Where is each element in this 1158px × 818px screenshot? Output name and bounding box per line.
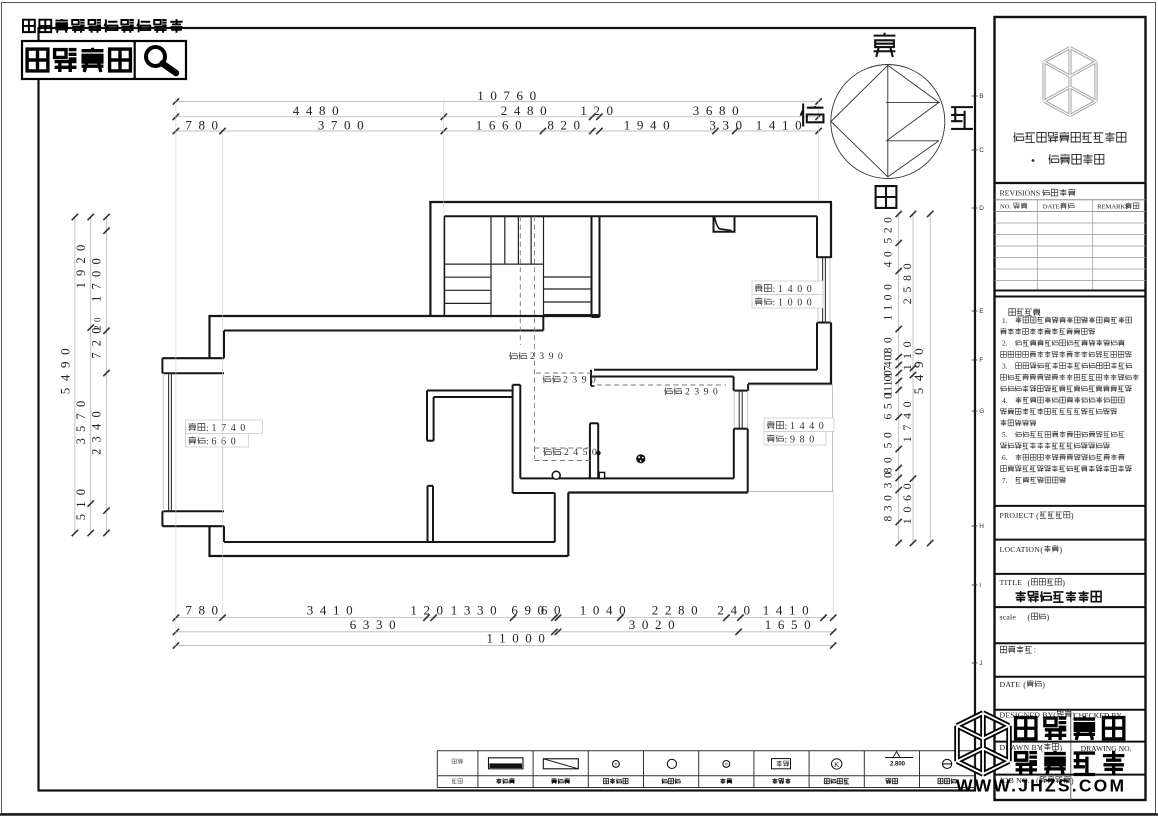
svg-text:(: ( — [1028, 579, 1031, 588]
svg-text:1330: 1330 — [451, 603, 503, 618]
svg-text:2390: 2390 — [530, 351, 567, 362]
svg-text:2.: 2. — [1002, 340, 1008, 348]
svg-text:40: 40 — [883, 247, 895, 268]
svg-text:1.: 1. — [1002, 317, 1008, 325]
svg-text:2480: 2480 — [501, 103, 553, 118]
svg-text:): ) — [1071, 512, 1074, 521]
svg-text:780: 780 — [185, 603, 224, 618]
svg-text:(: ( — [1040, 743, 1043, 752]
svg-text:WWW.JHZS.COM: WWW.JHZS.COM — [956, 776, 1126, 796]
svg-text:1000: 1000 — [778, 298, 816, 309]
svg-text:1660: 1660 — [476, 118, 528, 133]
svg-text:5490: 5490 — [911, 342, 926, 394]
svg-text:3.: 3. — [1002, 363, 1008, 371]
svg-text:2340: 2340 — [90, 405, 104, 455]
svg-text:2.800: 2.800 — [890, 762, 906, 768]
svg-text:720: 720 — [90, 321, 104, 358]
svg-text:NO.: NO. — [1000, 204, 1012, 211]
svg-text:3570: 3570 — [74, 395, 88, 445]
svg-text:60: 60 — [541, 603, 567, 618]
svg-text:3700: 3700 — [318, 118, 370, 133]
svg-text:2390: 2390 — [563, 375, 600, 386]
svg-text:1410: 1410 — [763, 603, 815, 618]
svg-text:scale: scale — [1000, 613, 1017, 622]
svg-text:E: E — [979, 308, 984, 315]
svg-text::: : — [773, 284, 776, 295]
svg-text:4480: 4480 — [293, 103, 345, 118]
svg-text:830: 830 — [883, 490, 895, 521]
svg-text:): ) — [1059, 743, 1062, 752]
svg-text::: : — [785, 435, 788, 446]
svg-text:1060: 1060 — [900, 478, 914, 524]
svg-text:120: 120 — [580, 103, 619, 118]
svg-text:TITLE: TITLE — [1000, 578, 1023, 587]
svg-text:520: 520 — [883, 212, 895, 243]
svg-text:2580: 2580 — [900, 258, 914, 304]
svg-text:3020: 3020 — [629, 617, 681, 632]
svg-text::: : — [1034, 646, 1036, 655]
svg-text:3410: 3410 — [307, 603, 359, 618]
svg-text:): ) — [1047, 613, 1050, 622]
svg-text:780: 780 — [185, 118, 224, 133]
svg-text:PROJECT: PROJECT — [1000, 511, 1034, 520]
svg-text::: : — [785, 421, 788, 432]
svg-text:(: ( — [1036, 512, 1039, 521]
svg-text:2450: 2450 — [564, 447, 601, 458]
svg-text:650: 650 — [883, 388, 895, 419]
svg-text:660: 660 — [212, 437, 241, 448]
svg-text:4.: 4. — [1002, 397, 1008, 405]
svg-text:LOCATION: LOCATION — [1000, 545, 1041, 554]
svg-text:50: 50 — [883, 428, 895, 449]
svg-text:DRAWN BY: DRAWN BY — [1000, 743, 1043, 752]
svg-text:D: D — [979, 205, 984, 212]
svg-text:C: C — [979, 147, 984, 154]
svg-text:1940: 1940 — [624, 118, 676, 133]
svg-text:240: 240 — [717, 603, 756, 618]
svg-text:330: 330 — [709, 118, 748, 133]
svg-text:2280: 2280 — [652, 603, 704, 618]
svg-text:1920: 1920 — [74, 239, 88, 289]
svg-text:820: 820 — [547, 118, 586, 133]
svg-text:1040: 1040 — [580, 603, 632, 618]
svg-text:1740: 1740 — [900, 396, 914, 442]
svg-text:6330: 6330 — [350, 617, 402, 632]
svg-text:2390: 2390 — [685, 387, 722, 398]
svg-text:J: J — [979, 660, 982, 667]
svg-text:(: ( — [1040, 546, 1043, 555]
svg-text:F: F — [979, 357, 983, 364]
svg-text:B: B — [979, 93, 983, 100]
svg-text:DATE: DATE — [1000, 680, 1021, 689]
svg-text:1100: 1100 — [883, 280, 895, 321]
svg-text:1410: 1410 — [756, 118, 808, 133]
svg-text:510: 510 — [74, 483, 88, 520]
svg-text:3680: 3680 — [693, 103, 745, 118]
svg-text:DATE: DATE — [1043, 204, 1060, 211]
svg-text:1440: 1440 — [790, 421, 828, 432]
svg-text:REVISIONS: REVISIONS — [1000, 189, 1041, 198]
svg-text:11000: 11000 — [486, 631, 551, 646]
svg-text:(: ( — [1028, 613, 1031, 622]
svg-text:1400: 1400 — [778, 284, 816, 295]
svg-text::: : — [206, 423, 209, 434]
svg-text:6.: 6. — [1002, 454, 1008, 462]
svg-text:10760: 10760 — [477, 88, 543, 103]
svg-text:I: I — [979, 582, 981, 589]
svg-text:K: K — [834, 760, 839, 769]
svg-text:): ) — [1059, 546, 1062, 555]
svg-text:30: 30 — [883, 468, 895, 489]
svg-text:(: ( — [1023, 681, 1026, 690]
svg-text::: : — [206, 437, 209, 448]
svg-text:1740: 1740 — [212, 423, 250, 434]
svg-text:): ) — [1062, 579, 1065, 588]
svg-text::: : — [773, 298, 776, 309]
svg-text:120: 120 — [410, 603, 449, 618]
svg-text:7.: 7. — [1002, 477, 1008, 485]
svg-text:1700: 1700 — [90, 252, 104, 302]
svg-text:5.: 5. — [1002, 431, 1008, 439]
svg-text:5490: 5490 — [58, 342, 73, 394]
svg-text:H: H — [979, 523, 984, 530]
svg-text:): ) — [1042, 681, 1045, 690]
svg-text:980: 980 — [790, 435, 819, 446]
svg-text:REMARKS: REMARKS — [1097, 204, 1129, 211]
svg-text:G: G — [979, 408, 984, 415]
svg-text:1650: 1650 — [765, 617, 817, 632]
